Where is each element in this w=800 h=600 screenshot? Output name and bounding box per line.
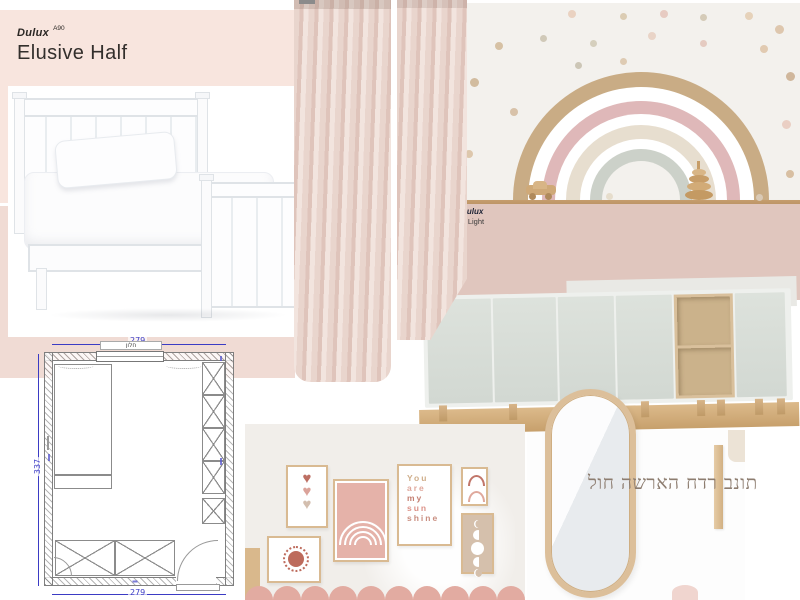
polka-dot: [660, 10, 668, 18]
polka-dot: [786, 170, 794, 178]
scallop-icon: [329, 586, 357, 600]
rainbow-decal-photo: [456, 3, 800, 230]
bed-footboard: [206, 182, 306, 308]
plan-corner-arc: [54, 556, 74, 576]
polka-dot: [700, 14, 707, 21]
bed-leg: [36, 268, 47, 310]
plan-cabinet-cell: [202, 498, 225, 524]
moon-phase-icon: [474, 569, 482, 577]
moon-phases-print: [461, 513, 494, 574]
cabinet-leg: [509, 404, 517, 420]
cabinet-leg: [777, 398, 785, 414]
polka-dot: [495, 42, 503, 50]
gallery-wall-photo: ♥♥♥ Youaremysunshine: [245, 424, 525, 600]
plan-door-swing: [176, 539, 218, 581]
hearts-print: ♥♥♥: [286, 465, 328, 528]
plan-window: [96, 351, 164, 362]
dulux-brand-logo: Dulux: [17, 27, 49, 39]
toy-car-icon: [526, 181, 556, 200]
cabinet-leg: [755, 399, 763, 415]
plan-wardrobe-cell: [202, 395, 225, 428]
plan-annotation: [220, 458, 222, 465]
shelf-compartment: [677, 347, 731, 396]
moon-phase-icon: [471, 542, 484, 555]
bed-shadow: [48, 308, 288, 322]
plan-low-unit-cell: [115, 540, 175, 576]
paint-code: A90: [53, 25, 65, 32]
cabinet-door: [616, 295, 674, 400]
polka-dot: [620, 13, 627, 20]
polka-dot: [620, 58, 627, 65]
post-cap: [12, 92, 27, 99]
plan-window-label: חלון: [100, 341, 162, 350]
polka-dot: [745, 12, 753, 20]
polka-dot: [782, 120, 791, 129]
cabinet-door: [734, 292, 787, 397]
dimension-left: 337: [33, 457, 42, 476]
headboard-top-rail: [22, 100, 202, 117]
polka-dot: [470, 78, 479, 87]
plan-bed-foot: [54, 474, 112, 489]
plan-bed: [54, 364, 112, 476]
plan-wall-left: [44, 352, 53, 586]
scallop-icon: [301, 586, 329, 600]
scallop-icon: [273, 586, 301, 600]
polka-dot: [590, 40, 597, 47]
heart-icon: ♥: [288, 498, 326, 511]
wall-shadow: [728, 430, 745, 462]
arches-print: [461, 467, 488, 506]
sunshine-print: Youaremysunshine: [397, 464, 452, 546]
footboard-post-left: [201, 178, 212, 318]
moon-phase-icon: [473, 530, 483, 540]
board-title: לוח השראה חדר בנות: [588, 472, 758, 495]
curtain-rod: [299, 0, 315, 4]
floor-plan: 279 337 279 חלון: [34, 338, 242, 600]
sunshine-word: my: [407, 493, 450, 503]
polka-dot: [575, 62, 582, 69]
sunshine-word: sun: [407, 503, 450, 513]
footboard-top-rail: [208, 184, 304, 198]
floor-accent: [672, 585, 698, 600]
post-cap: [199, 174, 214, 181]
polka-dot: [568, 10, 576, 18]
moon-phase-icon: [474, 520, 482, 528]
polka-dot: [648, 32, 656, 40]
rainbow-print: [333, 479, 389, 562]
wooden-ball-icon: [756, 194, 763, 201]
sun-icon: [283, 546, 309, 572]
bed-photo: [8, 86, 311, 337]
cabinet-body: [423, 288, 793, 408]
paint-name: Elusive Half: [17, 42, 127, 65]
cabinet-leg: [439, 405, 447, 421]
cabinet-leg: [697, 400, 705, 416]
plan-wardrobe-cell: [202, 362, 225, 395]
plan-annotation: [48, 454, 50, 461]
moon-phase-icon: [473, 557, 483, 567]
plan-door-leaf: [176, 584, 220, 591]
sunshine-word: are: [407, 483, 450, 493]
cabinet-leg: [717, 400, 725, 416]
curtain-symbol: [166, 363, 202, 369]
sunshine-word: shine: [407, 513, 450, 523]
curtain-panel-right: [397, 0, 467, 340]
polka-dot: [760, 45, 768, 53]
cabinet-open-shelf: [673, 293, 734, 398]
mood-board: DuluxA90 Elusive Half: [0, 0, 800, 600]
plan-wardrobe-cell: [202, 461, 225, 494]
sun-print: [267, 536, 321, 583]
curtain-header: [397, 0, 467, 8]
curtain-panel-left: [294, 0, 391, 382]
plan-wardrobe-cell: [202, 428, 225, 461]
arch-icon: [468, 491, 485, 502]
plan-annotation: [133, 581, 138, 583]
stacking-tower-icon: [684, 161, 714, 201]
plan-wall-right: [225, 352, 234, 586]
post-cap: [195, 92, 210, 99]
polka-dot: [700, 40, 707, 47]
sunshine-word: You: [407, 473, 450, 483]
polka-dot: [786, 72, 795, 81]
wooden-ball-icon: [606, 193, 613, 200]
polka-dot: [540, 35, 547, 42]
cabinet-door: [558, 296, 616, 401]
shelf-compartment: [676, 296, 730, 345]
polka-dot: [775, 25, 784, 34]
plan-wall-note: [47, 436, 49, 450]
cabinet-leg: [641, 401, 649, 417]
cabinet-legs: [787, 292, 789, 396]
arch-icon: [468, 475, 485, 486]
cabinet-door: [492, 297, 558, 402]
plan-annotation: [220, 356, 222, 361]
dimension-bottom: 279: [128, 588, 147, 597]
